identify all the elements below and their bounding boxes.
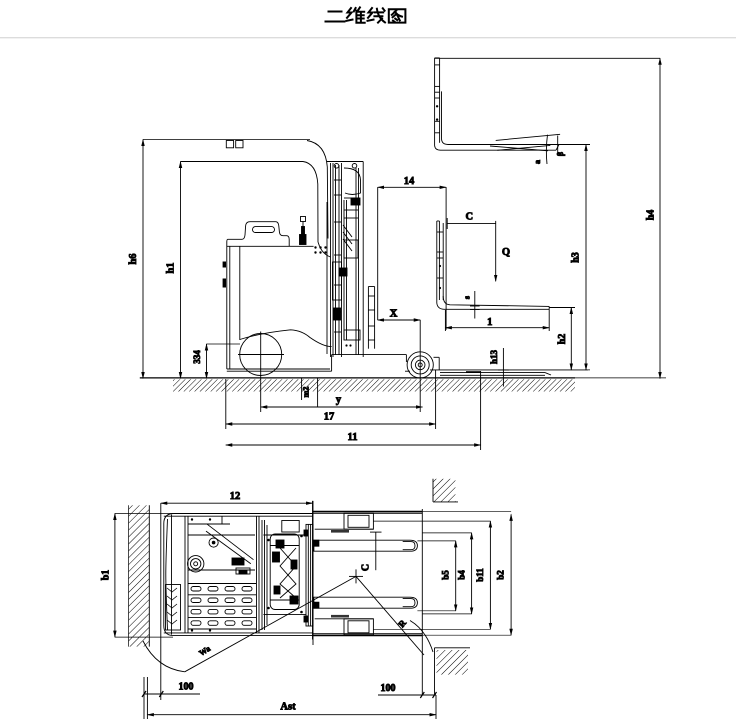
svg-text:h2: h2 xyxy=(557,334,568,345)
svg-text:a: a xyxy=(533,160,542,164)
svg-text:h1: h1 xyxy=(166,262,177,273)
svg-text:b1: b1 xyxy=(101,570,112,581)
svg-text:h6: h6 xyxy=(128,253,139,264)
svg-text:b11: b11 xyxy=(475,568,485,582)
svg-text:11: 11 xyxy=(348,432,358,443)
svg-text:17: 17 xyxy=(324,412,335,423)
svg-text:100: 100 xyxy=(179,682,194,693)
svg-text:12: 12 xyxy=(230,491,241,502)
svg-text:X: X xyxy=(390,309,398,320)
svg-text:y: y xyxy=(336,395,342,406)
svg-text:100: 100 xyxy=(381,683,396,694)
svg-text:s: s xyxy=(463,296,472,299)
svg-text:h13: h13 xyxy=(489,350,499,365)
svg-text:Q: Q xyxy=(502,247,510,258)
svg-text:Ast: Ast xyxy=(280,702,296,713)
svg-text:h4: h4 xyxy=(646,210,657,221)
svg-text:334: 334 xyxy=(192,350,202,364)
svg-text:1: 1 xyxy=(487,317,492,328)
svg-text:h3: h3 xyxy=(571,252,582,263)
svg-text:14: 14 xyxy=(404,176,415,187)
svg-text:b5: b5 xyxy=(441,570,451,580)
svg-text:C: C xyxy=(361,564,372,571)
svg-text:C: C xyxy=(466,212,474,223)
svg-text:b2: b2 xyxy=(496,570,506,580)
svg-text:β: β xyxy=(556,152,565,156)
svg-text:m2: m2 xyxy=(302,387,311,398)
svg-text:b4: b4 xyxy=(457,570,467,580)
